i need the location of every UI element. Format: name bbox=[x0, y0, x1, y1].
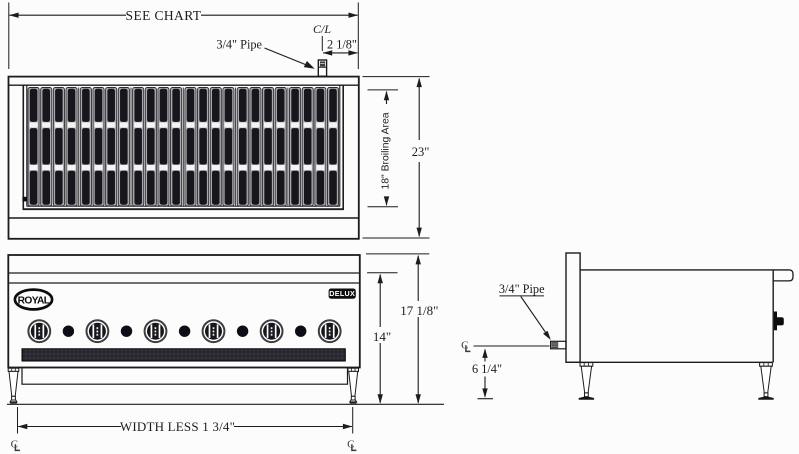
svg-text:DELUX: DELUX bbox=[329, 289, 355, 298]
svg-text:17 1/8": 17 1/8" bbox=[400, 303, 438, 318]
svg-text:SEE CHART: SEE CHART bbox=[126, 8, 202, 23]
svg-text:ROYAL: ROYAL bbox=[18, 296, 50, 307]
svg-text:18" Broiling Area: 18" Broiling Area bbox=[380, 112, 391, 189]
svg-text:C: C bbox=[461, 340, 468, 352]
svg-text:C: C bbox=[11, 439, 18, 451]
svg-text:2 1/8": 2 1/8" bbox=[327, 38, 357, 52]
svg-text:C/L: C/L bbox=[313, 22, 331, 36]
svg-text:3/4" Pipe: 3/4" Pipe bbox=[216, 38, 262, 52]
svg-text:3/4" Pipe: 3/4" Pipe bbox=[499, 282, 545, 296]
svg-text:C: C bbox=[347, 439, 354, 451]
svg-text:WIDTH LESS 1 3/4": WIDTH LESS 1 3/4" bbox=[120, 419, 235, 434]
svg-text:6 1/4": 6 1/4" bbox=[472, 362, 502, 376]
svg-text:23": 23" bbox=[412, 145, 430, 159]
svg-text:14": 14" bbox=[373, 329, 391, 344]
